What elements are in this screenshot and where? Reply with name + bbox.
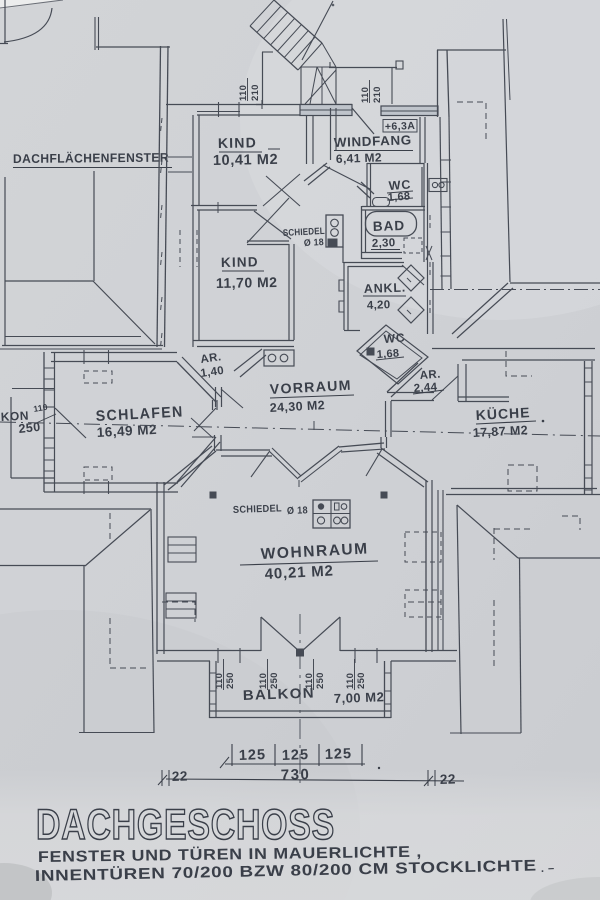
svg-text:AR.: AR. [419,369,441,382]
svg-text:2,44: 2,44 [413,381,438,395]
svg-text:KIND: KIND [218,134,257,151]
svg-text:2,30: 2,30 [372,237,396,250]
svg-text:WINDFANG: WINDFANG [334,132,412,150]
svg-text:BALKON: BALKON [243,684,316,703]
svg-text:17,87 M2: 17,87 M2 [472,423,528,440]
svg-text:+6,3A: +6,3A [385,120,416,133]
svg-text:BAD: BAD [373,218,406,234]
svg-text:7,00 M2: 7,00 M2 [334,689,385,706]
svg-text:40,21 M2: 40,21 M2 [264,562,334,583]
svg-text:22: 22 [172,768,189,784]
svg-text:DACHGESCHOSS: DACHGESCHOSS [36,801,335,849]
svg-text:22: 22 [440,771,457,787]
svg-text:24,30 M2: 24,30 M2 [269,398,325,415]
svg-text:730: 730 [281,766,311,784]
svg-text:ANKL.: ANKL. [364,281,407,296]
svg-text:125: 125 [239,747,267,764]
svg-text:250: 250 [356,672,367,689]
svg-text:125: 125 [325,746,353,763]
svg-text:11,70 M2: 11,70 M2 [216,274,278,291]
svg-text:WC: WC [383,331,406,346]
svg-text:125: 125 [282,747,310,764]
svg-text:250: 250 [315,672,326,689]
svg-text:210: 210 [372,86,383,103]
svg-text:DACHFLÄCHENFENSTER: DACHFLÄCHENFENSTER [13,150,169,166]
svg-text:SCHIEDEL: SCHIEDEL [233,503,282,516]
svg-text:4,20: 4,20 [367,299,391,312]
svg-text:. –: . – [541,863,555,875]
svg-text:10,41 M2: 10,41 M2 [213,152,279,169]
svg-text:Ø 18: Ø 18 [287,505,308,517]
svg-text:KÜCHE: KÜCHE [475,404,531,423]
svg-text:KIND: KIND [221,254,259,270]
svg-text:Ø 18: Ø 18 [304,237,325,249]
svg-text:210: 210 [250,84,261,101]
svg-text:250: 250 [225,672,236,689]
